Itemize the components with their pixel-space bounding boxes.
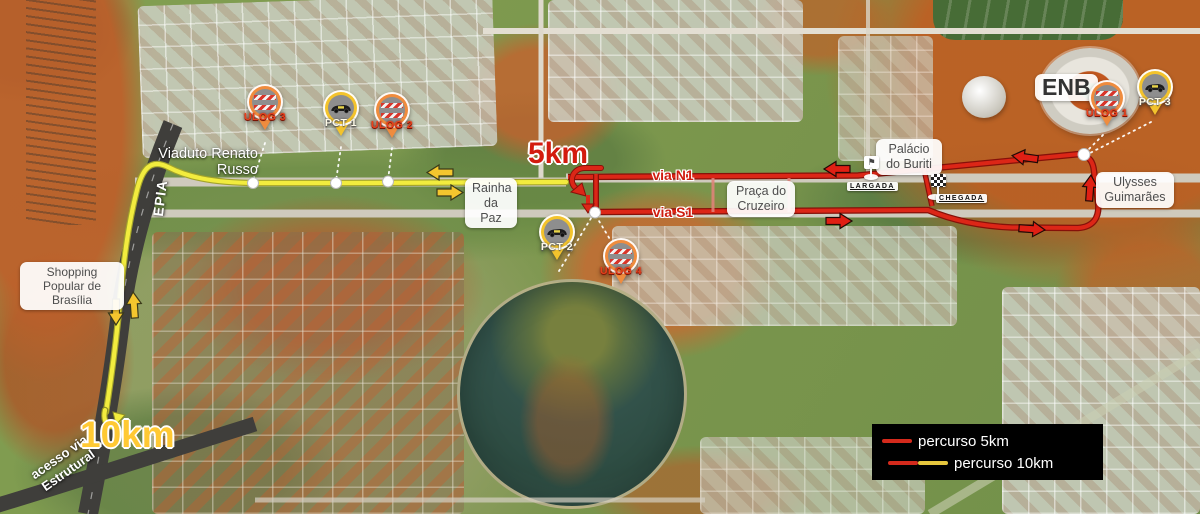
pin-label: PCT 3 [1123, 96, 1187, 108]
legend-row-10km: percurso 10km [882, 455, 1093, 472]
barrier-icon [1096, 91, 1118, 106]
label-largada: LARGADA [847, 182, 898, 191]
route-legend: percurso 5km percurso 10km [872, 424, 1103, 480]
legend-label-5km: percurso 5km [918, 433, 1009, 450]
marker-pin-pct-1[interactable]: PCT 1 [319, 90, 363, 136]
marker-pin-ulog-4[interactable]: ULOG 4 [599, 238, 643, 284]
marker-pin-pct-2[interactable]: PCT 2 [535, 214, 579, 260]
race-car-icon [1143, 80, 1167, 94]
start-point [864, 174, 878, 180]
label-viaduto-renato-russo: Viaduto Renato Russo [150, 146, 258, 178]
barrier-icon [610, 249, 632, 264]
marker-pin-ulog-3[interactable]: ULOG 3 [243, 84, 287, 130]
pin-label: ULOG 4 [589, 265, 653, 277]
marker-pin-ulog-2[interactable]: ULOG 2 [370, 92, 414, 138]
legend-swatch-5km [882, 439, 912, 443]
barrier-icon [254, 95, 276, 110]
label-palacio-do-buriti: Palácio do Buriti [876, 139, 942, 175]
pin-label: PCT 2 [525, 241, 589, 253]
marker-pin-pct-3[interactable]: PCT 3 [1133, 69, 1177, 115]
label-5km-marker: 5km [528, 137, 588, 171]
pin-label: ULOG 1 [1075, 107, 1139, 119]
label-chegada: CHEGADA [936, 194, 987, 203]
pin-label: ULOG 3 [233, 111, 297, 123]
race-car-icon [329, 101, 353, 115]
label-ulysses-guimaraes: Ulysses Guimarães [1096, 172, 1174, 208]
legend-swatch-10km-yellow [918, 461, 948, 465]
pin-leader-lines [253, 122, 1151, 271]
legend-swatch-10km-red [888, 461, 918, 465]
map-canvas: Viaduto Renato Russo EPIA acesso via Est… [0, 0, 1200, 514]
label-rainha-da-paz: Rainha da Paz [465, 178, 517, 228]
legend-label-10km: percurso 10km [954, 455, 1053, 472]
flag-glyph: ⚑ [867, 157, 875, 168]
race-car-icon [545, 225, 569, 239]
label-praca-do-cruzeiro: Praça do Cruzeiro [727, 181, 795, 217]
label-via-s1: via S1 [638, 204, 708, 220]
pin-label: ULOG 2 [360, 119, 424, 131]
barrier-icon [381, 103, 403, 118]
legend-row-5km: percurso 5km [882, 433, 1093, 450]
label-shopping-popular: Shopping Popular de Brasília [20, 262, 124, 310]
label-10km-marker: 10km [80, 414, 175, 456]
label-via-n1: via N1 [638, 167, 708, 183]
